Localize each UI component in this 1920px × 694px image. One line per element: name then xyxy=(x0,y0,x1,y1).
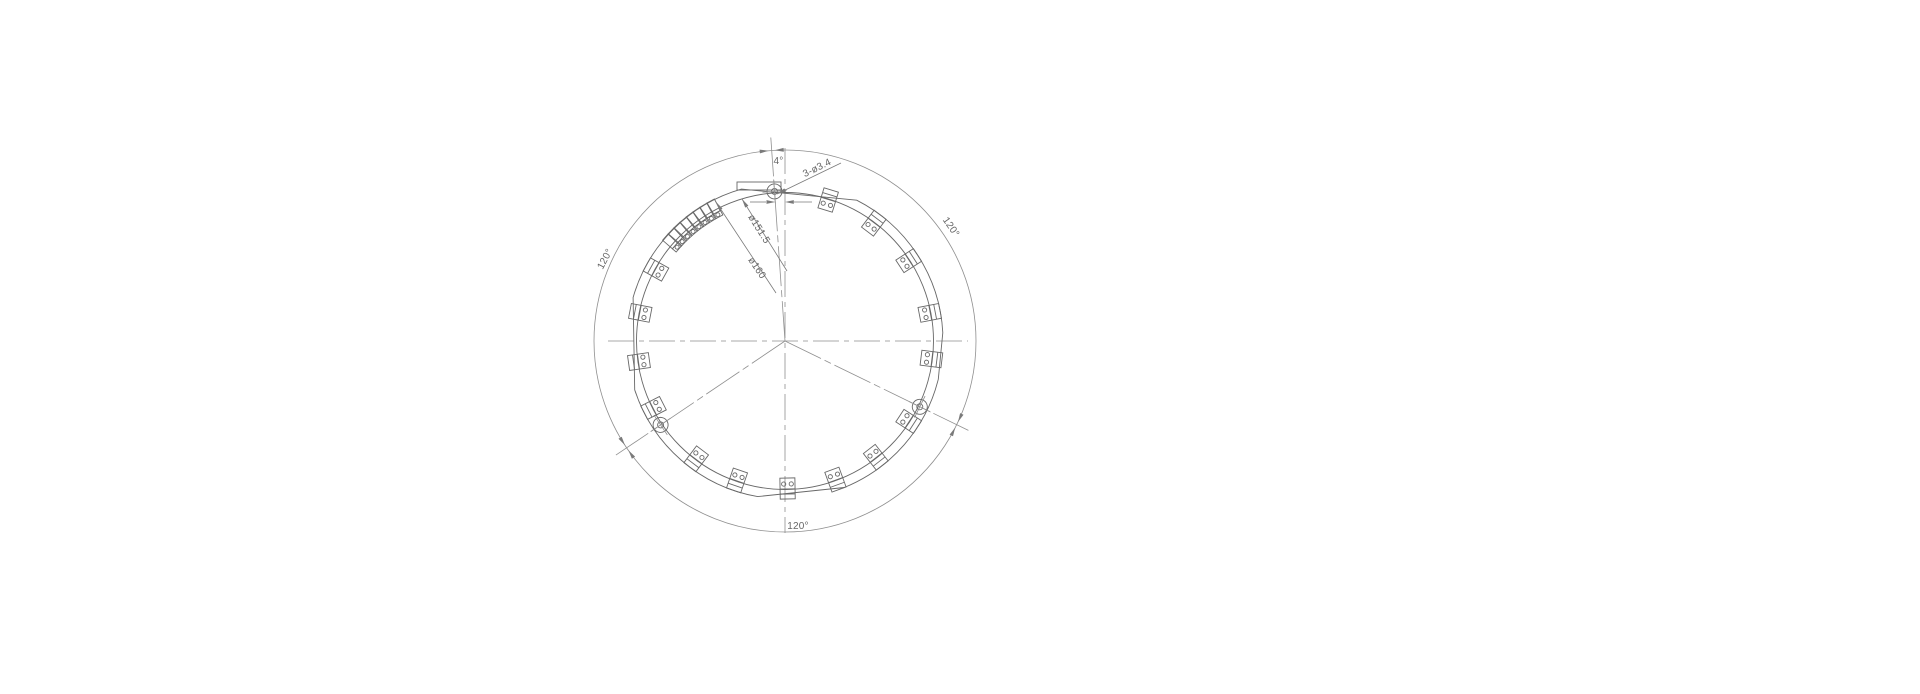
block-screw xyxy=(828,203,833,208)
strip-socket xyxy=(683,232,693,242)
block-screw xyxy=(871,226,877,232)
block-screw xyxy=(922,308,927,313)
block-screw xyxy=(821,201,826,206)
block-screw xyxy=(835,471,840,476)
arc-dimension-arrowhead xyxy=(619,437,626,446)
terminal-block xyxy=(684,446,709,472)
label-holes-3-d3-4: 3-ø3.4 xyxy=(801,157,833,180)
block-screw xyxy=(904,263,910,269)
terminal-block xyxy=(861,210,886,236)
block-divider xyxy=(934,304,937,319)
block-divider xyxy=(650,402,657,415)
block-body xyxy=(643,258,669,281)
block-body xyxy=(896,409,922,433)
block-screw xyxy=(643,308,648,313)
arc-dimension-arrowhead xyxy=(958,413,964,422)
block-screw xyxy=(900,419,906,425)
dim-arrow-right xyxy=(785,200,794,204)
block-screw xyxy=(739,475,744,480)
angle-4deg-dimension: 4° xyxy=(750,156,812,204)
strip-socket xyxy=(672,242,681,252)
block-screw xyxy=(641,315,646,320)
block-screw xyxy=(659,266,665,272)
block-screw xyxy=(867,453,873,459)
block-screw xyxy=(641,355,646,360)
block-screw xyxy=(693,450,699,456)
block-screw xyxy=(924,315,929,320)
arc-dimension-arrowhead xyxy=(760,150,769,154)
terminal-block xyxy=(780,478,795,499)
block-divider xyxy=(633,304,636,319)
block-screw xyxy=(865,222,871,228)
block-screw xyxy=(789,482,793,486)
terminal-block xyxy=(896,409,922,433)
arc-dimension-arrowhead xyxy=(950,427,956,436)
block-body xyxy=(727,468,748,493)
block-body xyxy=(818,188,838,212)
block-screw xyxy=(642,362,647,367)
radial-boundary-line xyxy=(771,138,785,342)
terminal-block xyxy=(641,397,667,420)
label-dia-151-5: ø151.5 xyxy=(745,213,772,246)
label-arc-120-bottom: 120° xyxy=(787,521,808,532)
block-divider xyxy=(823,193,837,197)
label-dia-160: ø160 xyxy=(745,255,767,281)
block-screw xyxy=(828,474,833,479)
cad-viewport: 4° 3-ø3.4 ø151.5 ø160 120° 120° 120° xyxy=(0,0,1920,694)
block-body xyxy=(896,249,922,273)
strip-socket xyxy=(677,237,687,247)
strip-cell xyxy=(668,228,687,247)
block-screw xyxy=(653,400,659,406)
holes-callout-leader: 3-ø3.4 xyxy=(777,157,841,194)
terminal-block xyxy=(863,444,888,470)
block-divider xyxy=(728,483,742,488)
block-divider xyxy=(936,352,938,367)
label-arc-120-upper-right: 120° xyxy=(940,215,961,239)
block-screw xyxy=(656,406,662,412)
terminal-block xyxy=(896,249,922,273)
terminal-block xyxy=(727,468,748,493)
block-screw xyxy=(925,352,930,357)
leader-arrow-d151 xyxy=(742,199,748,208)
mounting-hole xyxy=(904,391,936,423)
block-screw xyxy=(655,272,661,278)
block-divider xyxy=(652,263,659,276)
block-divider xyxy=(830,482,844,487)
terminal-block xyxy=(643,258,669,281)
generated-features xyxy=(616,138,969,500)
block-screw xyxy=(732,472,737,477)
terminal-block xyxy=(818,188,838,212)
label-angle-4deg: 4° xyxy=(774,156,784,167)
block-screw xyxy=(873,448,879,454)
block-divider xyxy=(829,478,843,483)
arc-dimension-arrowhead xyxy=(775,148,784,152)
leader-line-d160 xyxy=(716,202,776,293)
outer-diameter-leader: ø160 xyxy=(716,202,776,293)
block-screw xyxy=(900,257,906,263)
dim-arrow-left xyxy=(767,200,776,204)
technical-drawing: 4° 3-ø3.4 ø151.5 ø160 120° 120° 120° xyxy=(0,0,1920,694)
block-screw xyxy=(699,455,705,461)
block-screw xyxy=(924,360,929,365)
block-body xyxy=(641,397,667,420)
terminal-block xyxy=(628,353,651,371)
block-screw xyxy=(904,413,910,419)
